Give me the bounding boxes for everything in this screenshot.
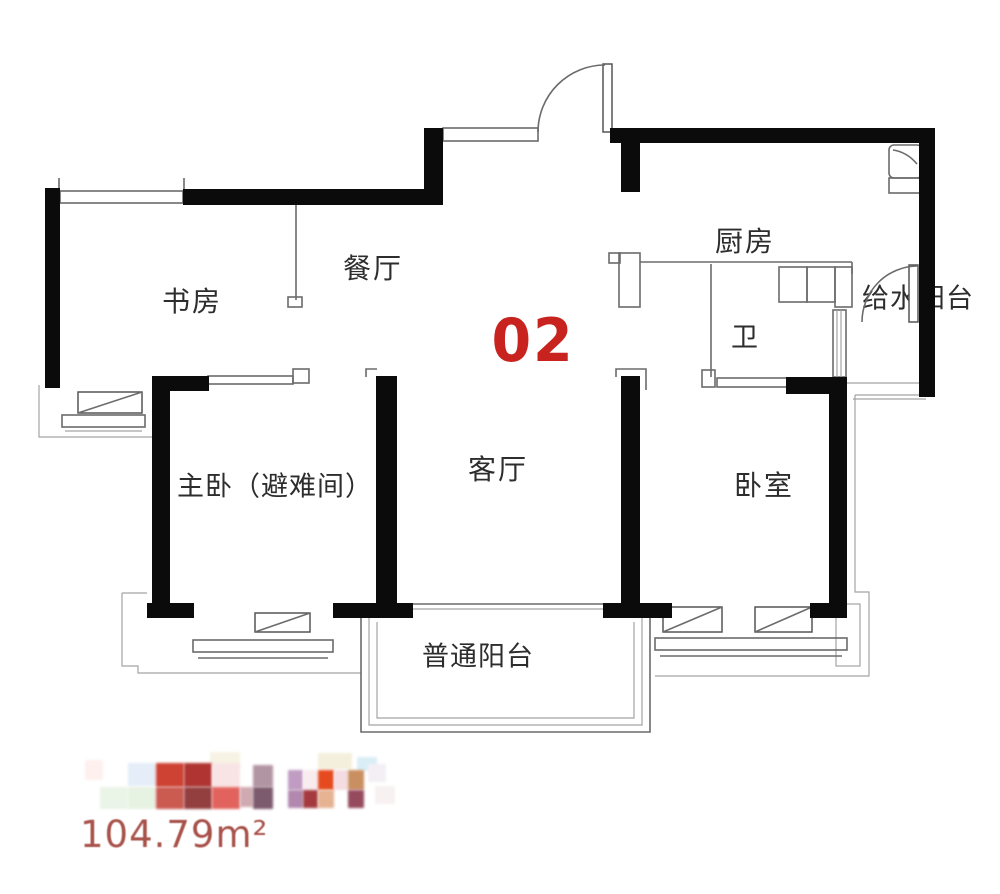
room-label-balcony: 普通阳台 <box>419 635 537 674</box>
entry-door-arc <box>538 65 605 132</box>
floorplan-page: 给水阳台 <box>0 0 1000 894</box>
master-door-header <box>208 369 646 390</box>
walls-layer <box>45 128 935 618</box>
room-label-living: 客厅 <box>468 448 528 488</box>
floorplan-drawing <box>0 0 1000 894</box>
kitchen-counter <box>609 253 852 307</box>
bath-door-jamb <box>702 370 787 387</box>
balcony-slider-line <box>413 604 603 609</box>
entry-door-leaf <box>603 64 612 132</box>
master-bay-window <box>193 613 333 658</box>
room-label-study: 书房 <box>162 280 222 320</box>
entry-door <box>538 64 612 132</box>
room-label-master-bedroom: 主卧（避难间） <box>177 465 373 504</box>
sink-unit <box>889 145 922 193</box>
area-label: 104.79m² <box>80 813 268 856</box>
room-label-bath: 卫 <box>731 316 759 355</box>
study-bay-window <box>78 392 142 413</box>
room-label-kitchen: 厨房 <box>715 220 775 260</box>
water-balcony-door-leaf <box>909 265 918 322</box>
room-label-bedroom: 卧室 <box>734 464 794 504</box>
water-balcony-door <box>862 265 918 322</box>
dining-partition <box>288 204 302 307</box>
duct-shaft <box>833 310 846 377</box>
room-label-dining: 餐厅 <box>343 247 403 287</box>
bay-outlines <box>39 383 933 732</box>
unit-number: 02 <box>491 306 574 376</box>
kitchen-cabinets <box>779 267 852 307</box>
entry-threshold <box>443 128 538 141</box>
study-top-window <box>59 178 184 203</box>
